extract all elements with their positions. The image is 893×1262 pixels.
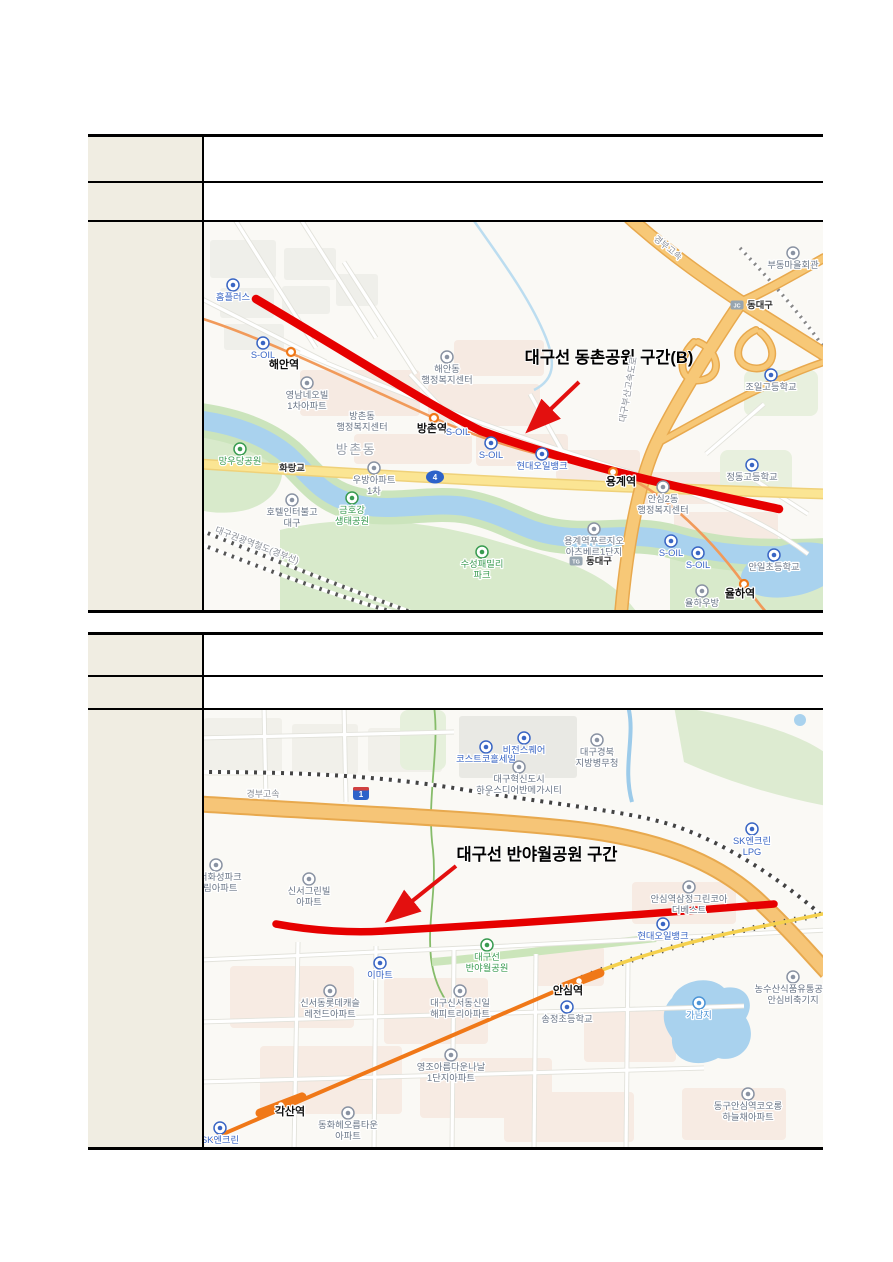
map-label: 경부고속 — [246, 788, 279, 799]
map-label: 용계역 — [606, 474, 636, 488]
document-page: 대구선 동촌공원 구간(B) 4홈플러스S-OIL해안역영남네오빌1차아파트해안… — [0, 0, 893, 1262]
table-row — [88, 634, 823, 677]
map-label: 신서동롯데캐슬레전드아파트 — [300, 998, 360, 1019]
map-label: 가남지 — [686, 1010, 712, 1020]
map-label: 현대오일뱅크 — [516, 461, 568, 471]
map-annotation: 대구선 반야월공원 구간 — [457, 845, 618, 864]
map-label: 망우당공원 — [219, 456, 262, 466]
svg-text:TG: TG — [572, 560, 580, 566]
row-value-text — [204, 155, 823, 163]
map-label: SK엔크린 — [204, 1135, 239, 1145]
station-ring-icon — [287, 348, 295, 356]
row-value-cell — [203, 676, 823, 709]
section-table-2: 대구선 반야월공원 구간 1경부고속코스트코홀세일비전스퀘어대구혁신도시하우스디… — [88, 632, 823, 1150]
row-value-cell — [203, 182, 823, 221]
svg-text:JC: JC — [734, 304, 741, 310]
row-value-text — [204, 689, 823, 697]
row-value-cell — [203, 634, 823, 677]
map-label: 동대구 — [747, 299, 773, 310]
table-row: 대구선 반야월공원 구간 1경부고속코스트코홀세일비전스퀘어대구혁신도시하우스디… — [88, 709, 823, 1149]
map-1: 대구선 동촌공원 구간(B) 4홈플러스S-OIL해안역영남네오빌1차아파트해안… — [204, 222, 823, 610]
map-label: 동대구 — [586, 555, 612, 566]
map-label: S-OIL — [686, 560, 710, 570]
map-label: 비전스퀘어 — [503, 745, 546, 755]
map-label: 대구신서동신일해피트리아파트 — [430, 998, 490, 1019]
map-label: 영남네오빌1차아파트 — [286, 390, 329, 411]
table-row: 대구선 동촌공원 구간(B) 4홈플러스S-OIL해안역영남네오빌1차아파트해안… — [88, 221, 823, 612]
map-label: 방촌동 — [336, 442, 376, 457]
row-value-cell — [203, 136, 823, 183]
row-value-text — [204, 198, 823, 206]
map1-base-geography — [204, 222, 823, 610]
row-header-label — [88, 155, 202, 163]
map-label: S-OIL — [479, 450, 503, 460]
map-label: 안일초등학교 — [748, 562, 800, 572]
map-annotation: 대구선 동촌공원 구간(B) — [525, 348, 694, 367]
map-label: 화랑교 — [279, 462, 305, 473]
map-label: 부동마을회관 — [767, 260, 819, 270]
map-2: 대구선 반야월공원 구간 1경부고속코스트코홀세일비전스퀘어대구혁신도시하우스디… — [204, 710, 823, 1147]
svg-text:4: 4 — [433, 473, 438, 482]
map-cell: 대구선 동촌공원 구간(B) 4홈플러스S-OIL해안역영남네오빌1차아파트해안… — [203, 221, 823, 612]
map-label: 율하역 — [725, 586, 755, 600]
station-ring-icon — [609, 468, 617, 476]
map-label: S-OIL — [659, 548, 683, 558]
map-label: 현대오일뱅크 — [637, 931, 689, 941]
row-header-cell — [88, 709, 203, 1149]
row-header-label — [88, 198, 202, 206]
row-header-label — [88, 651, 202, 659]
map-label: 안심역 — [553, 983, 583, 997]
row-header-cell — [88, 182, 203, 221]
row-value-text — [204, 651, 823, 659]
map-cell: 대구선 반야월공원 구간 1경부고속코스트코홀세일비전스퀘어대구혁신도시하우스디… — [203, 709, 823, 1149]
map-label: 각산역 — [275, 1104, 305, 1118]
map-label: 조일고등학교 — [745, 382, 797, 392]
station-ring-icon — [430, 414, 438, 422]
row-header-cell — [88, 634, 203, 677]
map-label: 율하우방 — [685, 598, 720, 608]
row-header-cell — [88, 676, 203, 709]
map-label: 동구안심역코오롱하늘채아파트 — [714, 1101, 783, 1122]
table-row — [88, 182, 823, 221]
map-label: 해안역 — [269, 357, 299, 371]
map-label: 금호강생태공원 — [335, 505, 369, 526]
svg-text:1: 1 — [359, 790, 364, 799]
map-label: 송정초등학교 — [541, 1014, 593, 1024]
map-label: 홈플러스 — [216, 291, 251, 302]
row-header-cell — [88, 136, 203, 183]
station-ring-icon — [740, 580, 748, 588]
section-table-1: 대구선 동촌공원 구간(B) 4홈플러스S-OIL해안역영남네오빌1차아파트해안… — [88, 134, 823, 613]
map-label: 정동고등학교 — [726, 472, 778, 482]
map-label: 이마트 — [367, 970, 393, 980]
row-header-cell — [88, 221, 203, 612]
map-label: S-OIL — [446, 427, 470, 437]
table-row — [88, 676, 823, 709]
map-label: 방촌역 — [417, 421, 447, 435]
map-label: 신서화성파크드림아파트 — [204, 872, 242, 893]
row-header-label — [88, 689, 202, 697]
table-row — [88, 136, 823, 183]
